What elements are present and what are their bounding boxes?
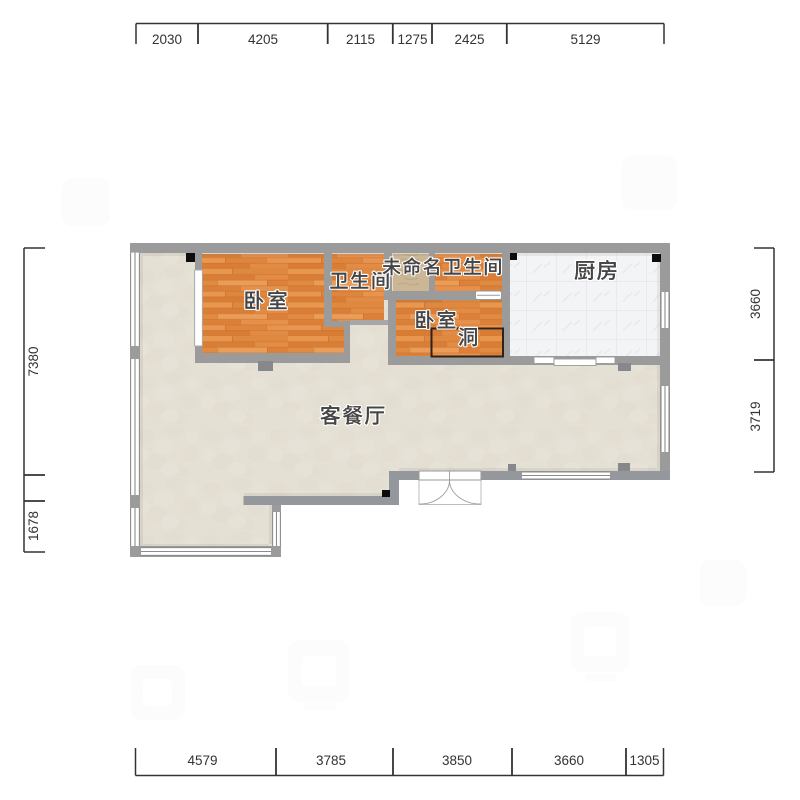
svg-text:3850: 3850 <box>442 753 472 768</box>
svg-text:2030: 2030 <box>152 32 182 47</box>
svg-text:1305: 1305 <box>629 753 659 768</box>
svg-text:4579: 4579 <box>187 753 217 768</box>
svg-text:4205: 4205 <box>248 32 278 47</box>
svg-text:2425: 2425 <box>454 32 484 47</box>
svg-text:3660: 3660 <box>554 753 584 768</box>
svg-text:1678: 1678 <box>26 511 41 541</box>
svg-text:7380: 7380 <box>26 346 41 376</box>
svg-text:3660: 3660 <box>748 289 763 319</box>
svg-text:1275: 1275 <box>397 32 427 47</box>
svg-text:5129: 5129 <box>570 32 600 47</box>
svg-text:3785: 3785 <box>316 753 346 768</box>
svg-text:3719: 3719 <box>748 401 763 431</box>
svg-text:2115: 2115 <box>346 32 375 47</box>
